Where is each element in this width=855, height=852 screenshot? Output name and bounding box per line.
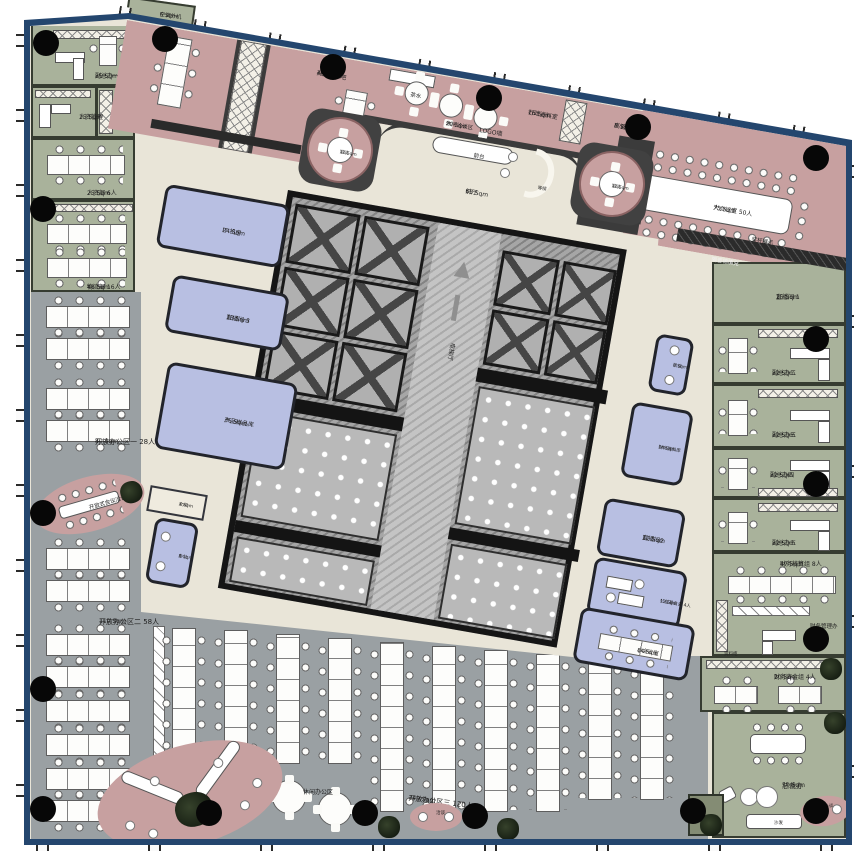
- meeting-table: [728, 458, 748, 490]
- chair-set: [285, 793, 294, 802]
- room-print: 文印4 Sqm: [146, 485, 208, 521]
- chair-col: [793, 198, 811, 241]
- room-area: 48 Sqm: [87, 284, 110, 292]
- restroom: [455, 386, 596, 544]
- desk-bank: [46, 700, 130, 722]
- talk-pod-1: 洽谈12 Sqm: [296, 106, 384, 194]
- stool: [124, 820, 136, 832]
- stool: [444, 812, 454, 822]
- room-fin-file: 14 Sqm财务资料库: [620, 401, 694, 487]
- room-area: 8 Sqm: [178, 554, 193, 562]
- stool: [239, 799, 251, 811]
- stool: [160, 531, 172, 543]
- stool: [664, 374, 676, 386]
- exec-desk-return: [818, 421, 830, 443]
- exec-desk: [762, 630, 796, 641]
- column: [625, 114, 651, 140]
- column: [352, 800, 378, 826]
- desk-column: [640, 662, 664, 800]
- cabinet-row: [758, 389, 838, 398]
- room-vp3: 22 Sqm副总办三: [712, 384, 846, 448]
- desk-bank: [46, 388, 130, 410]
- room-name: 副总办二: [772, 370, 796, 378]
- restroom: [438, 544, 567, 639]
- column: [680, 798, 706, 824]
- room-name: 副总办五: [772, 540, 796, 548]
- desk-column: [536, 654, 560, 812]
- desk-bank: [714, 686, 758, 704]
- exec-desk: [790, 460, 830, 471]
- meeting-table: [728, 338, 748, 374]
- room-area: 4 Sqm: [178, 502, 193, 510]
- bench: [193, 738, 242, 799]
- column: [196, 800, 222, 826]
- cabinet-row: [758, 503, 838, 512]
- elevator: [554, 261, 617, 326]
- plant-icon: [820, 658, 842, 680]
- column: [462, 803, 488, 829]
- desk-column: [276, 634, 300, 764]
- room-talk8: 洽谈8 Sqm: [647, 333, 694, 397]
- column: [30, 196, 56, 222]
- stool: [500, 168, 510, 178]
- desk: [605, 576, 633, 592]
- desk-bank: [47, 155, 125, 175]
- desk-column: [588, 658, 612, 800]
- desk-bank: [728, 576, 836, 594]
- room-area: 22 Sqm: [770, 472, 793, 480]
- room-name: 行政资料室: [527, 109, 558, 122]
- column: [152, 26, 178, 52]
- desk-column: [328, 638, 352, 764]
- floor-plan: 空调外机 6 Sqm 开放办公区一 28人80 Sqm 开放办公区二 58人11…: [0, 0, 855, 852]
- room-area: 20 Sqm: [774, 674, 797, 682]
- desk-column: [380, 642, 404, 812]
- cabinet-strip: [732, 606, 810, 616]
- chair: [634, 579, 646, 591]
- column: [30, 500, 56, 526]
- room-it: IT 机房24 Sqm: [155, 184, 290, 269]
- exec-desk-return: [73, 58, 84, 80]
- column: [320, 54, 346, 80]
- floor-plate: 开放办公区一 28人80 Sqm 开放办公区二 58人110 Sqm: [0, 0, 855, 852]
- desk-bank: [46, 734, 130, 756]
- room-area: 24 Sqm: [222, 227, 246, 238]
- chair-row: [750, 755, 806, 766]
- room-area: 13 Sqm: [226, 314, 250, 325]
- desk: [39, 104, 51, 128]
- room-area: 8 Sqm: [672, 363, 687, 371]
- column: [33, 30, 59, 56]
- shelf-strip: [716, 600, 728, 652]
- room-live1: 25 Sqm直播间 1: [712, 262, 846, 324]
- column: [803, 145, 829, 171]
- room-name: 休闲办公区: [303, 789, 333, 797]
- desk-bank: [46, 338, 130, 360]
- meeting-table: [598, 633, 674, 662]
- room-name: 副总办一: [95, 73, 119, 81]
- meeting-table: [99, 36, 117, 66]
- room-office8: 办公8 Sqm: [145, 517, 200, 590]
- round-table: [437, 92, 465, 120]
- exec-desk-return: [762, 641, 773, 655]
- elevator: [544, 320, 607, 385]
- desk-bank: [46, 666, 130, 688]
- exec-desk-return: [818, 531, 830, 551]
- open-area-left: 开放办公区一 28人80 Sqm 开放办公区二 58人110 Sqm: [31, 292, 141, 622]
- desk: [51, 104, 71, 114]
- desk-bank: [47, 258, 127, 278]
- exec-desk: [790, 410, 830, 421]
- stool: [251, 777, 263, 789]
- column: [803, 471, 829, 497]
- room-name: 财务资料库: [658, 445, 681, 454]
- column: [30, 796, 56, 822]
- column: [803, 326, 829, 352]
- elevator: [483, 309, 550, 374]
- plant-icon: [824, 712, 846, 734]
- room-vp5: 22 Sqm副总办五: [712, 498, 846, 552]
- room-name: 直播间 1: [776, 294, 800, 302]
- room-area: 11 Sqm: [641, 534, 665, 545]
- room-name: 公益基金会 4人: [659, 599, 691, 610]
- plant-icon: [497, 818, 519, 840]
- room-name: 沙发: [774, 821, 783, 827]
- desk-bank: [46, 548, 130, 570]
- meeting-table: [728, 512, 748, 544]
- elevator: [285, 204, 360, 275]
- cabinet-row: [706, 660, 826, 669]
- column: [476, 85, 502, 111]
- chair-set: [331, 805, 340, 814]
- chair-row: [750, 722, 806, 733]
- stool: [669, 345, 681, 357]
- room-area: 47 Sqm: [780, 561, 803, 569]
- exec-desk: [790, 520, 830, 531]
- desk-column: [432, 646, 456, 812]
- elevator: [354, 216, 429, 287]
- chair-set: [446, 100, 456, 110]
- exec-desk-return: [818, 359, 830, 381]
- desk-bank: [778, 686, 822, 704]
- elevator: [343, 279, 418, 350]
- desk: [617, 592, 645, 608]
- round-table: [318, 792, 352, 826]
- desk-bank: [46, 634, 130, 656]
- column: [803, 798, 829, 824]
- elevator: [493, 250, 560, 315]
- desk-bank: [47, 224, 127, 244]
- chair: [605, 592, 617, 604]
- room-name: 洽谈: [436, 811, 445, 817]
- room-area: 80 Sqm: [95, 438, 118, 446]
- coffee-table: [756, 786, 778, 808]
- shaft: [559, 99, 588, 144]
- column: [30, 676, 56, 702]
- stool: [418, 812, 428, 822]
- conference-table: [750, 734, 806, 754]
- wall: [95, 88, 98, 136]
- cabinet-row: [35, 90, 91, 98]
- desk-bank: [46, 306, 130, 328]
- column: [803, 626, 829, 652]
- room-area: 25 Sqm: [87, 190, 110, 198]
- talk-pod-2: 洽谈12 Sqm: [568, 140, 656, 228]
- stool: [147, 827, 159, 839]
- stool: [155, 560, 167, 572]
- room-area: 15 Sqm: [79, 114, 102, 122]
- room-area: 110 Sqm: [99, 618, 126, 626]
- desk-bank: [46, 580, 130, 602]
- desk-column: [484, 650, 508, 812]
- bench: [119, 769, 185, 806]
- room-hr-dept: 人资部 6人25 Sqm: [31, 138, 135, 200]
- room-area: 50 Sqm: [782, 782, 805, 790]
- elevator: [332, 342, 407, 413]
- chair-set: [480, 113, 490, 123]
- meeting-table: [728, 400, 748, 436]
- room-name: 产品样品库: [224, 417, 255, 430]
- talk-oval-bottom: 洽谈: [410, 803, 462, 831]
- room-name: 副总办三: [772, 432, 796, 440]
- stool: [508, 152, 518, 162]
- plant-icon: [378, 816, 400, 838]
